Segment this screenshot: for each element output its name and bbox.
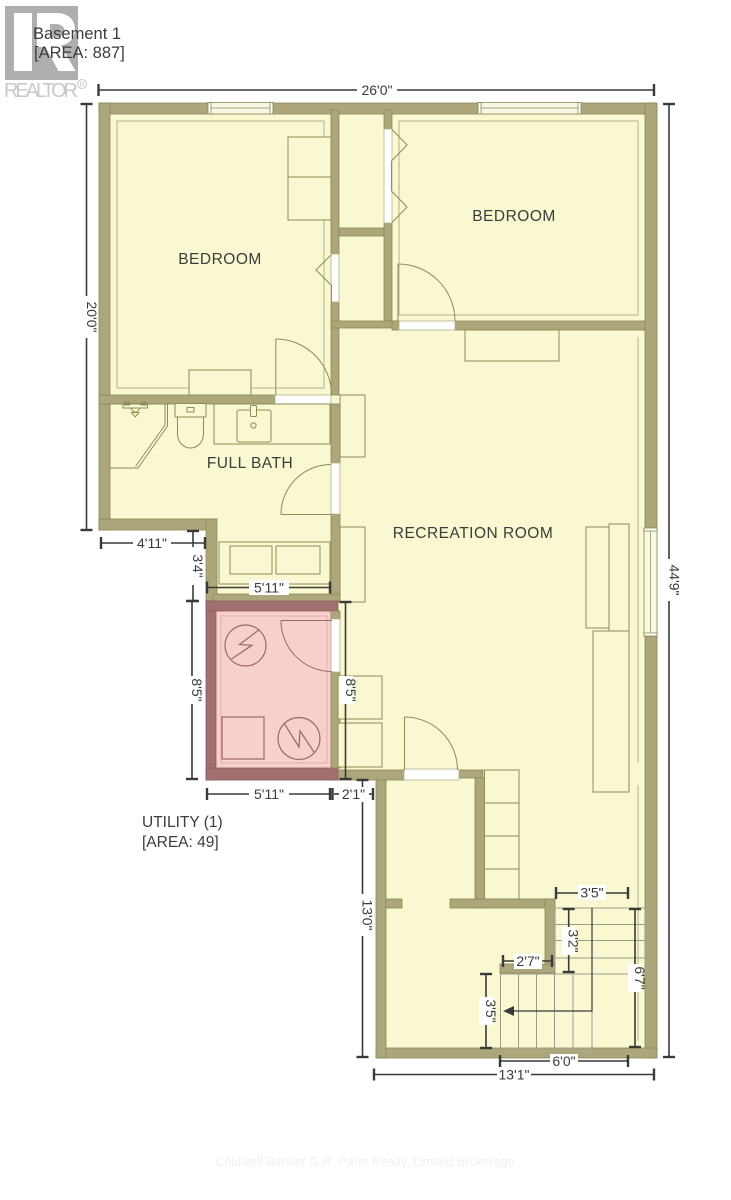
svg-text:Basement 1: Basement 1 [33, 25, 121, 43]
svg-text:[AREA: 887]: [AREA: 887] [34, 44, 125, 62]
svg-text:44'9": 44'9" [667, 564, 683, 595]
svg-text:FULL BATH: FULL BATH [207, 455, 293, 472]
svg-text:R: R [79, 82, 84, 89]
svg-text:3'4": 3'4" [190, 554, 206, 577]
svg-text:RECREATION ROOM: RECREATION ROOM [393, 525, 554, 542]
svg-text:26'0": 26'0" [361, 82, 392, 98]
svg-text:REALTOR: REALTOR [4, 80, 78, 102]
svg-text:[AREA: 49]: [AREA: 49] [142, 834, 219, 851]
svg-text:Coldwell Banker G.R. Paret Rea: Coldwell Banker G.R. Paret Realty, Limit… [215, 1155, 514, 1169]
svg-text:2'1": 2'1" [342, 786, 365, 802]
svg-text:5'11": 5'11" [254, 580, 284, 596]
svg-text:6'7": 6'7" [632, 966, 648, 989]
svg-text:2'7": 2'7" [516, 953, 539, 969]
svg-text:3'5": 3'5" [483, 999, 499, 1022]
svg-text:4'11": 4'11" [137, 535, 167, 551]
svg-text:20'0": 20'0" [84, 301, 100, 332]
svg-text:8'5": 8'5" [343, 678, 359, 701]
svg-text:13'0": 13'0" [360, 899, 376, 930]
svg-text:5'11": 5'11" [254, 786, 284, 802]
svg-text:8'5": 8'5" [189, 678, 205, 701]
svg-text:3'5": 3'5" [580, 885, 603, 901]
svg-text:BEDROOM: BEDROOM [472, 208, 556, 225]
svg-text:BEDROOM: BEDROOM [178, 251, 262, 268]
svg-text:6'0": 6'0" [552, 1053, 575, 1069]
svg-text:13'1": 13'1" [498, 1067, 529, 1083]
svg-text:3'2": 3'2" [566, 929, 582, 952]
svg-text:UTILITY (1): UTILITY (1) [142, 814, 223, 831]
